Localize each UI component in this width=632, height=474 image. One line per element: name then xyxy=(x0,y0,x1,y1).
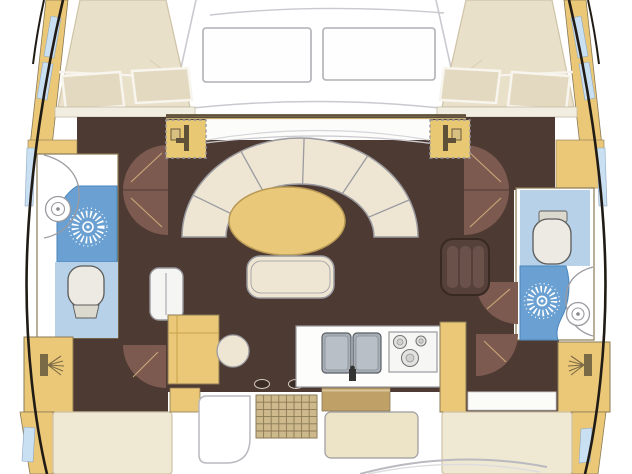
galley-tap-icon xyxy=(349,369,356,381)
port-round-sink-icon xyxy=(46,197,71,222)
saloon-forward-shelf xyxy=(206,118,430,140)
floor-hatch-handle-1 xyxy=(255,380,270,389)
cockpit-cushion xyxy=(325,412,418,458)
galley-tall-cabinet xyxy=(440,322,466,412)
starboard-pillow-2 xyxy=(440,68,500,103)
starboard-slatted-chair xyxy=(441,239,489,295)
port-shower-floor xyxy=(57,186,117,262)
port-pillow-2 xyxy=(132,68,192,103)
starboard-aft-deck-step xyxy=(468,392,556,410)
deck-hatch-starboard xyxy=(323,28,435,80)
port-toilet-base xyxy=(73,305,99,318)
port-companionway-steps xyxy=(170,388,200,412)
port-pillow-1 xyxy=(62,72,124,110)
floorplan-canvas xyxy=(0,0,632,474)
saloon-table xyxy=(229,187,345,255)
starboard-toilet-icon xyxy=(533,219,571,264)
catamaran-floorplan xyxy=(0,0,632,474)
port-toilet-icon xyxy=(68,266,104,307)
port-bathroom xyxy=(28,140,118,338)
nav-cabinet xyxy=(168,315,219,384)
round-stool xyxy=(217,335,249,367)
starboard-round-sink-icon xyxy=(567,303,590,326)
port-aft-window xyxy=(22,427,35,462)
galley-stove-icon xyxy=(389,332,437,372)
port-aft-berth xyxy=(53,412,172,474)
cockpit-seat-port xyxy=(199,396,250,463)
starboard-pillow-1 xyxy=(508,72,570,110)
deck-hatch-port xyxy=(203,28,311,82)
bench-seat xyxy=(247,256,334,298)
